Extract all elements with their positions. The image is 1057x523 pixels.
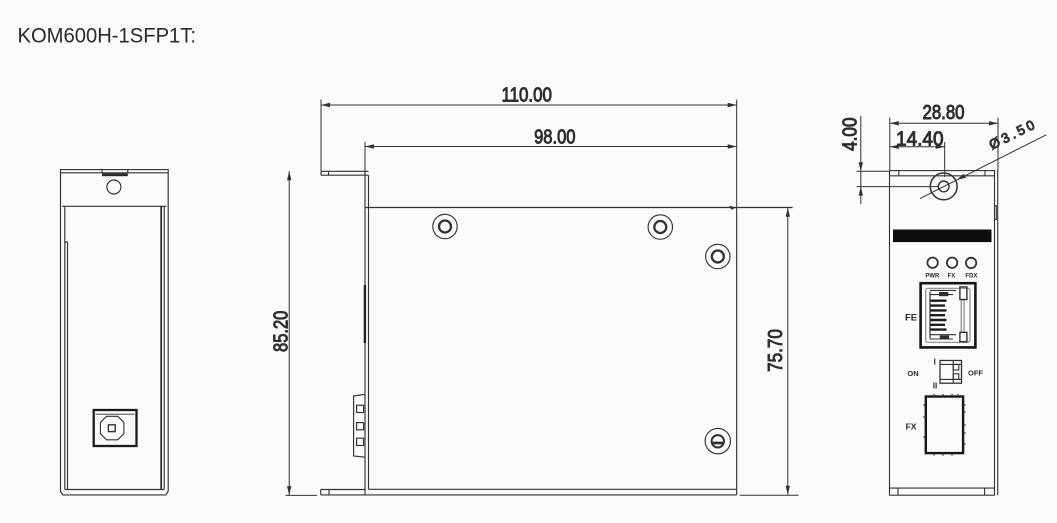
svg-text:28.80: 28.80 <box>923 102 965 124</box>
svg-text:75.70: 75.70 <box>765 329 787 372</box>
svg-text:85.20: 85.20 <box>270 311 292 352</box>
svg-text:98.00: 98.00 <box>534 127 575 149</box>
svg-text:PWR: PWR <box>925 274 940 280</box>
svg-text:14.40: 14.40 <box>896 129 944 151</box>
svg-text:I: I <box>934 358 936 367</box>
svg-text:110.00: 110.00 <box>502 84 552 106</box>
svg-text:FX: FX <box>906 422 917 432</box>
svg-text:FDX: FDX <box>965 274 977 280</box>
svg-text:OFF: OFF <box>968 369 983 378</box>
svg-text:4.00: 4.00 <box>839 117 861 151</box>
svg-text:FX: FX <box>948 274 956 280</box>
svg-text:FE: FE <box>905 313 917 324</box>
svg-text:II: II <box>933 382 937 391</box>
svg-text:KOM600H-1SFP1T:: KOM600H-1SFP1T: <box>18 24 197 48</box>
svg-text:ON: ON <box>907 369 918 378</box>
